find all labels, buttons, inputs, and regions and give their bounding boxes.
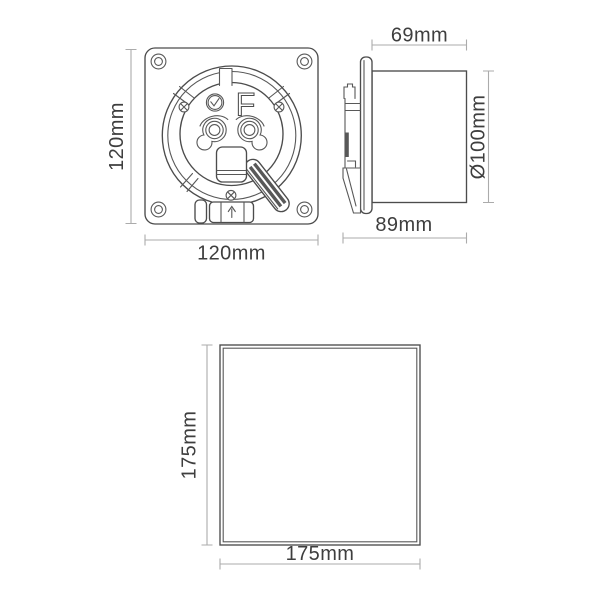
dim-side-diameter: Ø100mm xyxy=(468,71,495,203)
dim-label: 89mm xyxy=(375,214,432,236)
screw-bottom-icon xyxy=(226,190,236,200)
diagram-canvas: F xyxy=(0,0,600,600)
side-plate xyxy=(361,57,373,214)
assembly-top-tab xyxy=(220,68,233,86)
dim-label: 175mm xyxy=(179,411,201,480)
dim-label: Ø100mm xyxy=(468,95,490,180)
terminal-cover xyxy=(217,147,247,182)
dim-back-height: 120mm xyxy=(106,50,137,224)
dim-label: 120mm xyxy=(197,243,266,265)
front-panel-view: 175mm 175mm xyxy=(179,345,421,570)
dim-side-depth: 89mm xyxy=(343,214,467,244)
fan-side-view: 69mm Ø100mm 89mm xyxy=(343,25,494,244)
duct-body xyxy=(372,71,467,203)
panel-inner xyxy=(223,348,417,542)
side-tab xyxy=(195,200,207,223)
dim-label: 120mm xyxy=(106,102,128,171)
dimension-line xyxy=(202,345,213,545)
dim-front-height: 175mm xyxy=(179,345,213,545)
dim-label: 69mm xyxy=(391,25,448,47)
dim-label: 175mm xyxy=(286,543,355,565)
dim-back-width: 120mm xyxy=(145,235,318,265)
terminal-detail-lines xyxy=(345,104,361,111)
terminal-clip xyxy=(344,84,355,99)
fan-dimensions-diagram: F xyxy=(0,0,600,600)
screw-right-icon xyxy=(274,102,284,112)
marking-letter: F xyxy=(236,87,256,123)
dim-front-width: 175mm xyxy=(220,543,420,570)
cable-gland xyxy=(210,202,254,223)
screw-left-icon xyxy=(179,102,189,112)
fan-back-view: F xyxy=(106,48,318,265)
panel-outer xyxy=(220,345,420,545)
terminal-parts xyxy=(343,84,361,213)
terminal-bracket xyxy=(348,161,356,167)
terminal-rod xyxy=(345,133,348,158)
assembly-top-tab-fill xyxy=(220,68,233,86)
terminal-cover-body xyxy=(217,147,247,182)
dim-side-duct-length: 69mm xyxy=(372,25,467,51)
